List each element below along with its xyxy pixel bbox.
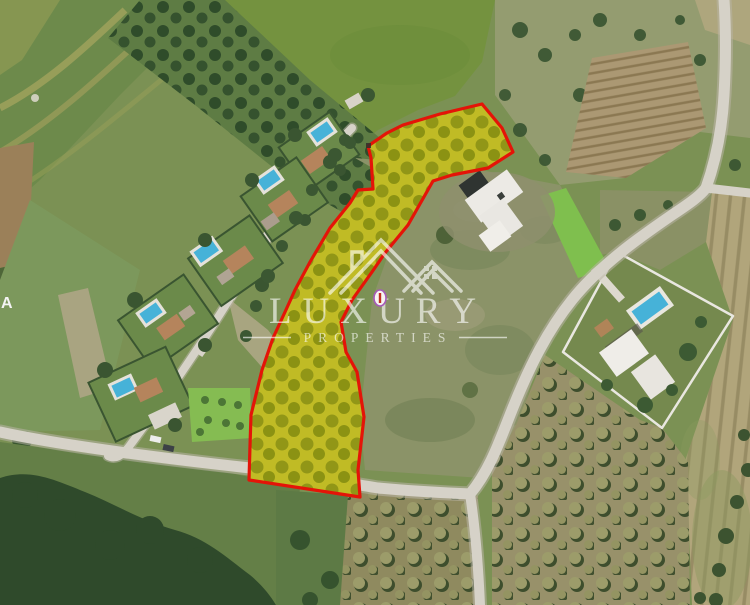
planted-lawn bbox=[188, 388, 252, 442]
property-aerial-photo: LUXURY PROPERTIES A bbox=[0, 0, 750, 605]
place-label: A bbox=[1, 295, 13, 312]
satellite-image: LUXURY PROPERTIES A bbox=[0, 0, 750, 605]
oval-location-marker bbox=[374, 290, 386, 306]
road-stub bbox=[706, 188, 750, 193]
boundary-vertex-marker bbox=[366, 143, 371, 148]
brand-sub-text: PROPERTIES bbox=[304, 330, 453, 345]
